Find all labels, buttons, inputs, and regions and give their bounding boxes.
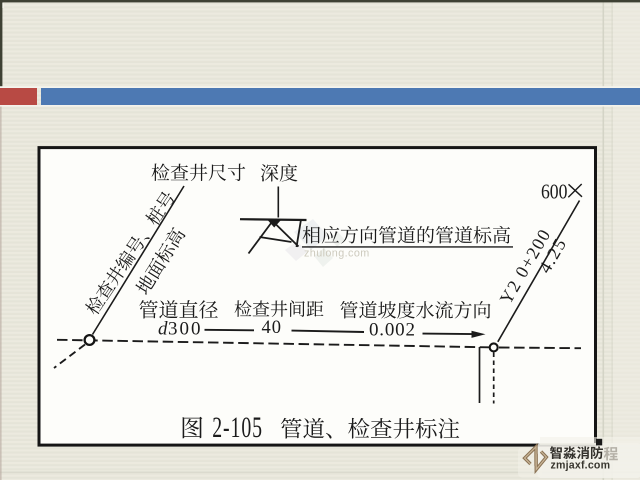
svg-text:d300: d300 bbox=[158, 319, 203, 340]
svg-text:40: 40 bbox=[262, 318, 283, 338]
svg-text:zmjaxf.com: zmjaxf.com bbox=[551, 460, 611, 472]
svg-text:0.002: 0.002 bbox=[369, 319, 416, 340]
svg-text:zhulong.com: zhulong.com bbox=[304, 248, 370, 260]
svg-text:600: 600 bbox=[541, 181, 567, 204]
svg-text:2-105: 2-105 bbox=[212, 411, 263, 444]
